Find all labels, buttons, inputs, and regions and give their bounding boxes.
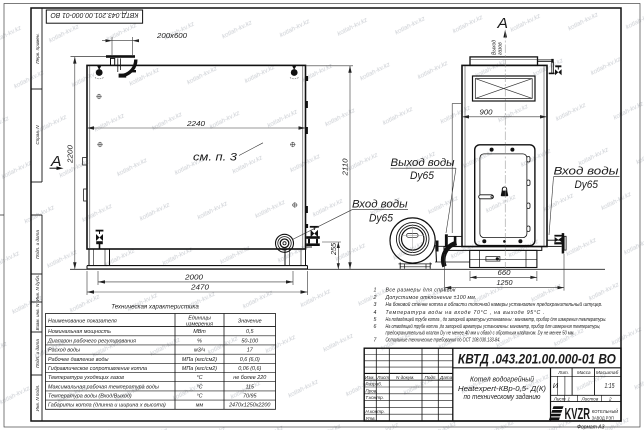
svg-text:2200: 2200 xyxy=(66,144,75,164)
svg-text:Котел водогрейный: Котел водогрейный xyxy=(470,376,534,384)
svg-text:255: 255 xyxy=(331,243,338,256)
svg-text:17: 17 xyxy=(247,348,254,354)
svg-text:Подп. и дата: Подп. и дата xyxy=(35,230,40,259)
svg-text:N докум.: N докум. xyxy=(396,375,415,380)
svg-text:900: 900 xyxy=(480,109,493,116)
svg-text:115: 115 xyxy=(245,384,255,390)
svg-text:Листов: Листов xyxy=(581,396,599,401)
svg-text:предохранительный клапан Dу н: предохранительный клапан Dу не менее 40 … xyxy=(386,330,575,337)
svg-text:2: 2 xyxy=(373,295,377,301)
svg-text:°С: °С xyxy=(196,384,202,390)
svg-text:Dy65: Dy65 xyxy=(410,170,435,182)
svg-text:Значение: Значение xyxy=(238,319,262,325)
svg-text:ЗАВОД РЭП: ЗАВОД РЭП xyxy=(592,415,614,420)
svg-text:Перв. примен.: Перв. примен. xyxy=(35,33,40,64)
svg-text:Лист: Лист xyxy=(553,396,566,401)
svg-text:Подп.: Подп. xyxy=(425,375,437,380)
svg-text:КОТЕЛЬНЫЙ: КОТЕЛЬНЫЙ xyxy=(592,407,619,414)
svg-text:Изм.: Изм. xyxy=(365,375,375,380)
svg-text:не более 220: не более 220 xyxy=(233,375,266,381)
svg-text:Инв. N дубл.: Инв. N дубл. xyxy=(35,275,40,302)
svg-text:A: A xyxy=(496,16,508,32)
svg-text:2: 2 xyxy=(608,396,612,401)
svg-text:1:15: 1:15 xyxy=(605,381,616,390)
svg-text:Лит.: Лит. xyxy=(557,370,569,375)
svg-text:Разраб.: Разраб. xyxy=(365,382,382,387)
svg-text:Температура воды на входе 70°: Температура воды на входе 70°С , на выхо… xyxy=(386,310,545,316)
svg-text:Н.контр.: Н.контр. xyxy=(365,409,384,414)
svg-text:МПа (кгс/см2): МПа (кгс/см2) xyxy=(182,357,217,363)
svg-text:Все размеры для справок: Все размеры для справок xyxy=(386,287,457,293)
svg-text:измерения: измерения xyxy=(186,321,213,327)
svg-text:0,06 (0,6): 0,06 (0,6) xyxy=(238,366,261,372)
svg-text:Вход воды: Вход воды xyxy=(554,166,619,178)
svg-text:660: 660 xyxy=(498,270,511,277)
svg-text:м3/ч: м3/ч xyxy=(194,348,205,354)
svg-text:Утв.: Утв. xyxy=(365,416,375,421)
svg-text:Пров.: Пров. xyxy=(365,388,377,393)
svg-text:Dy65: Dy65 xyxy=(575,179,599,191)
svg-text:3: 3 xyxy=(374,302,377,308)
svg-text:2000: 2000 xyxy=(184,272,204,281)
svg-text:1: 1 xyxy=(568,396,571,401)
svg-text:70/95: 70/95 xyxy=(243,394,257,400)
svg-text:Наименование показателя: Наименование показателя xyxy=(48,319,117,325)
svg-text:4: 4 xyxy=(374,310,377,316)
svg-text:Рабочее давление воды: Рабочее давление воды xyxy=(48,357,108,363)
svg-text:Температура воды (Вход/Выход): Температура воды (Вход/Выход) xyxy=(48,394,132,400)
svg-text:2110: 2110 xyxy=(341,158,350,177)
svg-text:Габариты котла (длинна и ширин: Габариты котла (длинна и ширина х высота… xyxy=(48,403,166,409)
svg-text:Техническая характеристика: Техническая характеристика xyxy=(111,303,199,310)
svg-text:Максимальная рабочая температу: Максимальная рабочая температура воды xyxy=(48,384,159,390)
svg-text:Температура уходящих газов: Температура уходящих газов xyxy=(48,375,124,381)
svg-text:KVZR: KVZR xyxy=(565,406,591,423)
svg-text:Т.контр.: Т.контр. xyxy=(365,395,384,400)
svg-text:Формат А3: Формат А3 xyxy=(577,424,605,430)
svg-text:Гидравлическое сопротивление к: Гидравлическое сопротивление котла xyxy=(48,366,147,372)
svg-text:°С: °С xyxy=(196,394,202,400)
svg-text:Подп. и дата: Подп. и дата xyxy=(35,339,40,368)
svg-text:МПа (кгс/см2): МПа (кгс/см2) xyxy=(182,366,217,372)
svg-text:%: % xyxy=(197,338,202,344)
svg-text:На подводящей трубе котла , д: На подводящей трубе котла , до запорной … xyxy=(386,316,607,323)
svg-text:Масса: Масса xyxy=(577,370,591,375)
svg-text:Heatexpert-КВр-0,5- Д(К): Heatexpert-КВр-0,5- Д(К) xyxy=(458,386,546,393)
svg-text:по техническому заданию: по техническому заданию xyxy=(464,393,542,401)
svg-text:газов: газов xyxy=(498,42,504,55)
svg-text:1: 1 xyxy=(374,287,377,293)
svg-text:Вход воды: Вход воды xyxy=(352,199,408,211)
svg-text:°С: °С xyxy=(196,375,202,381)
svg-text:0,5: 0,5 xyxy=(246,329,254,335)
svg-text:2470: 2470 xyxy=(190,283,210,292)
svg-text:Справ. N: Справ. N xyxy=(35,125,40,145)
svg-text:Лист: Лист xyxy=(376,375,389,380)
svg-text:Взам. инв. N: Взам. инв. N xyxy=(35,303,40,330)
svg-text:2240: 2240 xyxy=(186,119,206,128)
svg-text:КВТД .043.201.00.000-01 ВО: КВТД .043.201.00.000-01 ВО xyxy=(458,351,616,367)
svg-text:И: И xyxy=(553,381,559,390)
svg-text:6: 6 xyxy=(374,324,377,330)
svg-text:Выход воды: Выход воды xyxy=(391,157,455,169)
svg-text:Номинальная мощность: Номинальная мощность xyxy=(48,329,111,335)
svg-text:5: 5 xyxy=(374,317,377,323)
svg-text:0,6 (6,0): 0,6 (6,0) xyxy=(240,357,260,363)
svg-text:200х600: 200х600 xyxy=(156,33,187,40)
svg-text:Инв. N подл.: Инв. N подл. xyxy=(35,385,40,412)
svg-text:см. п. 3: см. п. 3 xyxy=(193,152,238,164)
svg-text:Диапазон рабочего регулировани: Диапазон рабочего регулирования xyxy=(47,338,136,344)
svg-text:МВт: МВт xyxy=(193,329,206,335)
svg-text:На отводящей трубе котла ,до з: На отводящей трубе котла ,до запорной ар… xyxy=(386,323,601,330)
svg-text:Dy65: Dy65 xyxy=(369,213,394,225)
svg-text:Остальные технические требован: Остальные технические требования по ОСТ … xyxy=(386,338,501,344)
svg-text:50-100: 50-100 xyxy=(241,338,258,344)
svg-text:Масштаб: Масштаб xyxy=(596,370,619,375)
svg-text:На боковой стенке котла в обла: На боковой стенке котла в области топочн… xyxy=(386,301,603,308)
svg-text:Дата: Дата xyxy=(439,375,453,380)
svg-text:Расход воды: Расход воды xyxy=(48,348,80,354)
svg-text:Допустимое отклонение ±100 мм: Допустимое отклонение ±100 мм. xyxy=(385,295,477,301)
svg-text:КВТД.043.201.00.000-01 ВО: КВТД.043.201.00.000-01 ВО xyxy=(50,11,138,20)
svg-text:1250: 1250 xyxy=(497,280,513,287)
svg-text:мм: мм xyxy=(196,403,204,409)
svg-text:2470х1250х2200: 2470х1250х2200 xyxy=(228,403,270,409)
